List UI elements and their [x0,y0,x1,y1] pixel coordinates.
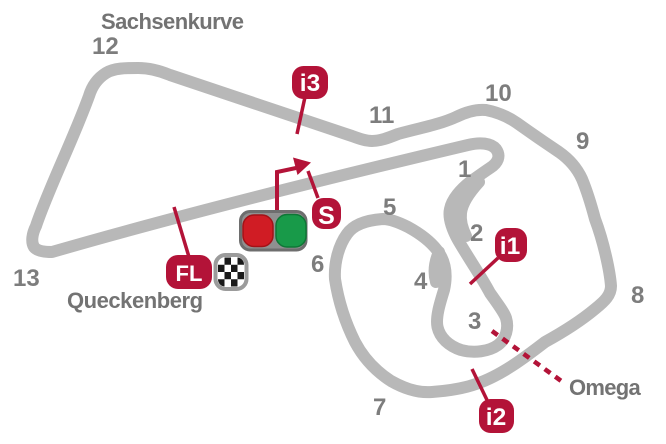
svg-text:8: 8 [631,282,644,309]
svg-text:Queckenberg: Queckenberg [67,288,203,313]
svg-text:3: 3 [468,308,481,335]
svg-text:11: 11 [369,102,394,129]
svg-text:i3: i3 [300,70,320,97]
svg-text:13: 13 [13,265,40,292]
svg-text:Sachsenkurve: Sachsenkurve [101,9,244,34]
svg-text:4: 4 [414,268,428,295]
svg-text:5: 5 [383,194,396,221]
svg-text:10: 10 [485,80,512,107]
svg-text:7: 7 [373,394,386,421]
svg-text:i1: i1 [500,233,520,260]
svg-text:6: 6 [311,251,324,278]
svg-text:2: 2 [470,220,483,247]
svg-text:S: S [318,202,335,230]
svg-text:12: 12 [92,33,119,60]
svg-text:9: 9 [576,128,589,155]
svg-text:Omega: Omega [569,375,642,400]
svg-text:FL: FL [176,261,203,286]
svg-text:i2: i2 [486,404,506,431]
svg-text:1: 1 [458,156,471,183]
